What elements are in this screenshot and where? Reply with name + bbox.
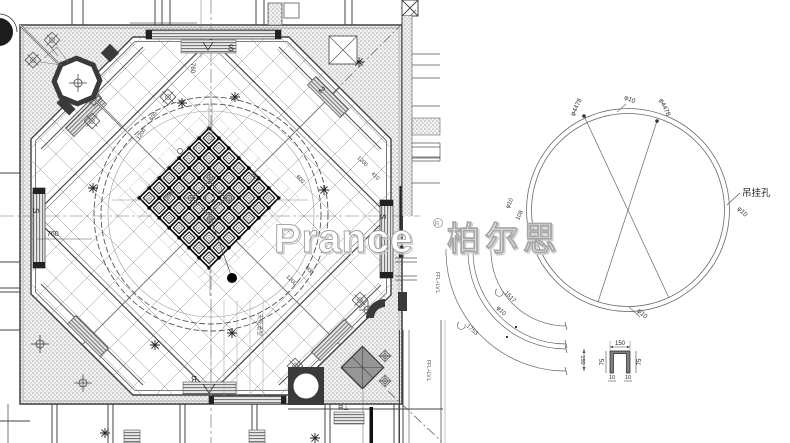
- svg-text:吊挂孔: 吊挂孔: [742, 187, 771, 199]
- svg-text:10: 10: [609, 375, 615, 381]
- svg-text:柏尔思: 柏尔思: [447, 220, 561, 257]
- svg-text:10: 10: [625, 375, 631, 381]
- svg-text:760: 760: [189, 63, 195, 74]
- svg-text:150: 150: [615, 341, 626, 347]
- svg-text:Я⊥: Я⊥: [338, 405, 349, 412]
- svg-text:Я: Я: [191, 375, 197, 384]
- svg-text:S: S: [228, 43, 234, 53]
- svg-text:75: 75: [637, 358, 643, 365]
- svg-text:150: 150: [579, 355, 585, 364]
- svg-text:FFL+LV.L: FFL+LV.L: [425, 360, 431, 381]
- svg-text:Prance: Prance: [274, 217, 413, 261]
- svg-text:FFL+LV.L: FFL+LV.L: [434, 272, 440, 293]
- svg-text:R: R: [435, 221, 440, 228]
- svg-text:75: 75: [600, 358, 606, 365]
- svg-text:760: 760: [47, 231, 59, 238]
- svg-text:S: S: [31, 208, 40, 213]
